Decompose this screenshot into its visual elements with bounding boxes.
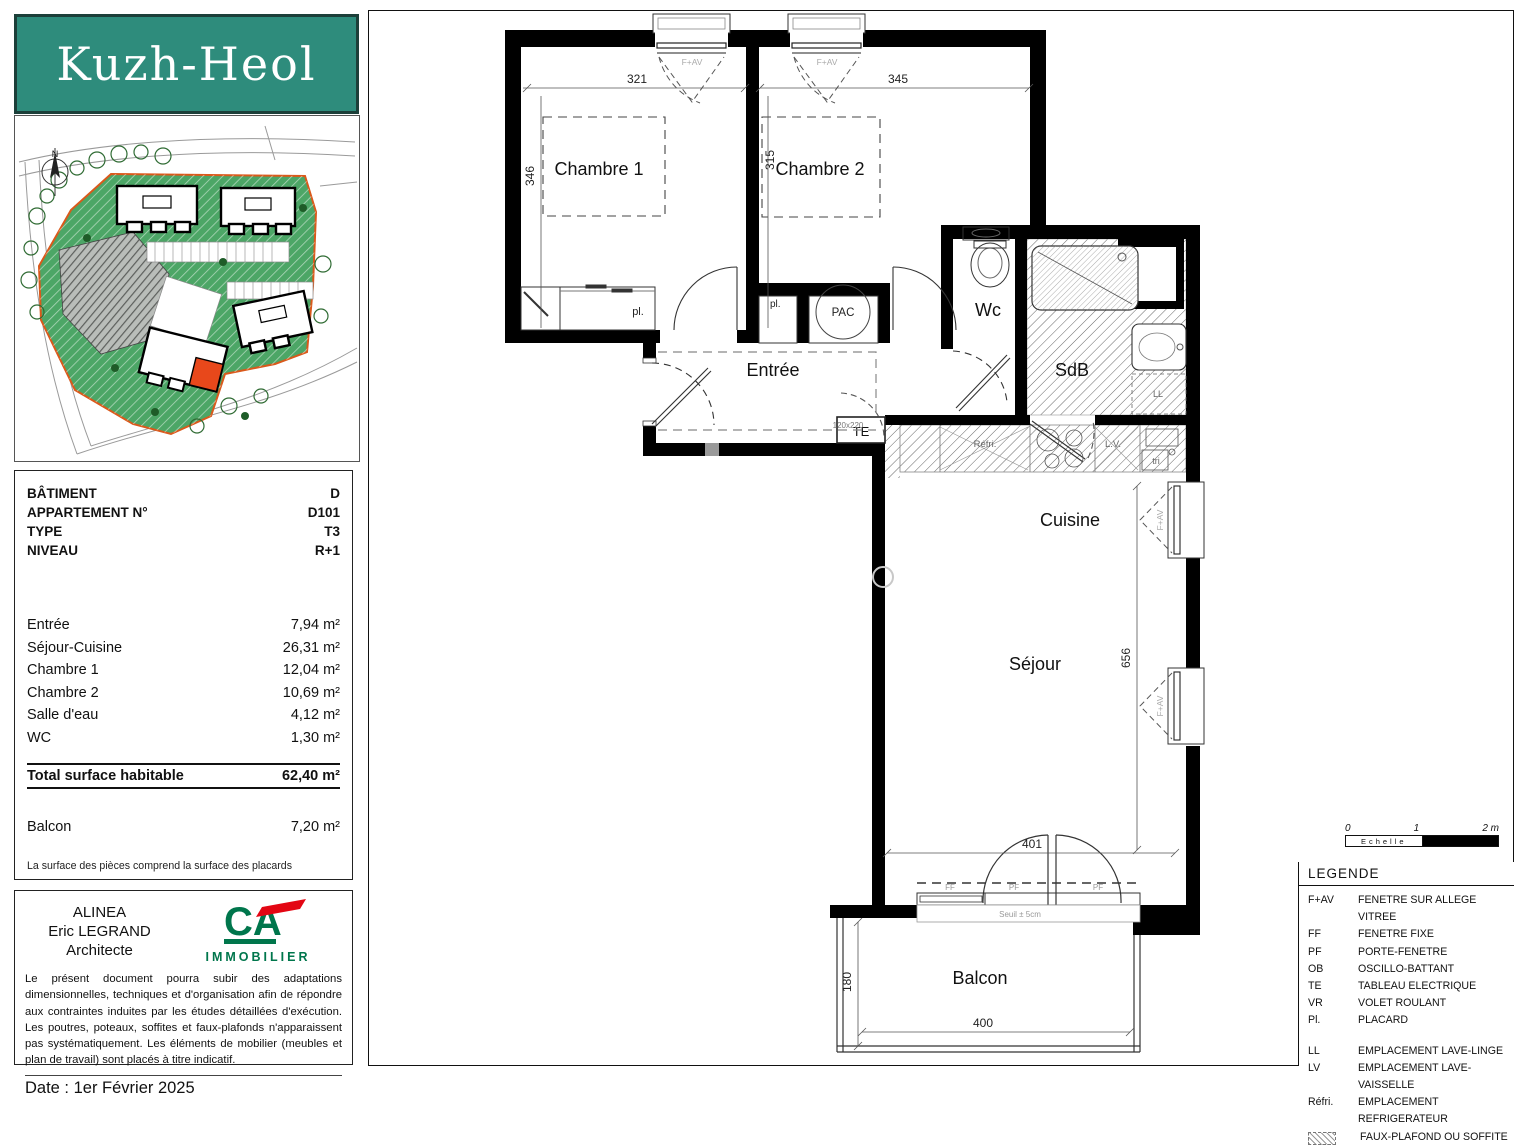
room-areas: Entrée7,94 m² Séjour-Cuisine26,31 m² Cha… bbox=[27, 614, 340, 749]
svg-text:F+AV: F+AV bbox=[1155, 509, 1165, 530]
room-entree: Entrée bbox=[746, 360, 799, 380]
brand-logo: Kuzh-Heol bbox=[14, 14, 359, 114]
info-label: BÂTIMENT bbox=[27, 484, 97, 503]
legend-panel: LEGENDE F+AVFENETRE SUR ALLEGE VITREE FF… bbox=[1298, 862, 1514, 1066]
dim-balcon-height: 180 bbox=[840, 972, 854, 992]
total-surface-row: Total surface habitable 62,40 m² bbox=[27, 763, 340, 789]
legal-disclaimer: Le présent document pourra subir des ada… bbox=[25, 971, 342, 1069]
area-row: Salle d'eau4,12 m² bbox=[27, 704, 340, 727]
dim-balcon-width: 400 bbox=[973, 1016, 993, 1030]
area-row: Séjour-Cuisine26,31 m² bbox=[27, 637, 340, 660]
hatch-swatch-icon bbox=[1308, 1132, 1336, 1145]
ca-logo-icon: CA bbox=[206, 899, 310, 945]
info-value: R+1 bbox=[315, 541, 340, 560]
dim-ch1-width: 321 bbox=[627, 72, 647, 86]
svg-text:PAC: PAC bbox=[832, 307, 855, 319]
svg-text:F+AV: F+AV bbox=[1155, 695, 1165, 716]
svg-text:F+AV: F+AV bbox=[817, 57, 838, 67]
svg-text:LL: LL bbox=[1153, 389, 1163, 399]
area-row: Entrée7,94 m² bbox=[27, 614, 340, 637]
site-plan: N bbox=[14, 115, 360, 462]
architect-identity: ALINEA Eric LEGRAND Architecte bbox=[25, 903, 174, 960]
dim-sejour-height: 656 bbox=[1119, 648, 1133, 668]
brand-name: Kuzh-Heol bbox=[56, 37, 316, 91]
site-plan-drawing: N bbox=[15, 116, 359, 461]
ca-immobilier-logo: CA IMMOBILIER bbox=[174, 899, 342, 964]
room-wc: Wc bbox=[975, 300, 1001, 320]
architect-panel: ALINEA Eric LEGRAND Architecte CA IMMOBI… bbox=[14, 890, 353, 1065]
seuil-label: Seuil ± 5cm bbox=[999, 910, 1041, 919]
architect-role: Architecte bbox=[25, 941, 174, 960]
apartment-location bbox=[189, 358, 223, 392]
room-chambre1: Chambre 1 bbox=[554, 159, 643, 179]
building-1 bbox=[117, 186, 197, 232]
tri-label: tri bbox=[1152, 456, 1160, 466]
legend-item: TETABLEAU ELECTRIQUE bbox=[1308, 978, 1514, 995]
svg-text:F+AV: F+AV bbox=[682, 57, 703, 67]
pf-label-2: PF bbox=[1093, 883, 1103, 892]
window-sejour-1: F+AV bbox=[1140, 482, 1204, 558]
closet-label: pl. bbox=[632, 306, 644, 318]
door-size-label: 120x220 bbox=[833, 421, 864, 430]
ca-logo-subtitle: IMMOBILIER bbox=[174, 950, 342, 964]
legend-item: PFPORTE-FENETRE bbox=[1308, 944, 1514, 961]
scale-bar: 0 1 2 m Echelle bbox=[1345, 823, 1499, 847]
legend-title: LEGENDE bbox=[1308, 866, 1514, 885]
legend-item: FFFENETRE FIXE bbox=[1308, 926, 1514, 943]
dim-ch2-width: 345 bbox=[888, 72, 908, 86]
scale-black-segment bbox=[1423, 836, 1499, 846]
info-value: T3 bbox=[324, 522, 340, 541]
window-chambre2: F+AV bbox=[788, 14, 865, 103]
architect-name: Eric LEGRAND bbox=[25, 922, 174, 941]
window-sejour-2: F+AV bbox=[1140, 668, 1204, 744]
apartment-info-panel: BÂTIMENTD APPARTEMENT N°D101 TYPET3 NIVE… bbox=[14, 470, 353, 880]
closet2-label: pl. bbox=[770, 299, 781, 310]
document-date: Date : 1er Février 2025 bbox=[25, 1075, 342, 1098]
scale-0: 0 bbox=[1345, 823, 1351, 834]
surface-footnote: La surface des pièces comprend la surfac… bbox=[27, 860, 292, 872]
window-chambre1: F+AV bbox=[653, 14, 730, 103]
legend-item: LLEMPLACEMENT LAVE-LINGE bbox=[1308, 1043, 1514, 1060]
pillar bbox=[705, 443, 719, 456]
area-row: Chambre 210,69 m² bbox=[27, 682, 340, 705]
dim-sejour-width: 401 bbox=[1022, 837, 1042, 851]
svg-text:N: N bbox=[52, 149, 59, 159]
legend-item: Pl.PLACARD bbox=[1308, 1012, 1514, 1029]
architect-firm: ALINEA bbox=[25, 903, 174, 922]
area-row: Chambre 112,04 m² bbox=[27, 659, 340, 682]
pf-label-1: PF bbox=[1009, 883, 1019, 892]
info-value: D bbox=[330, 484, 340, 503]
scale-label: Echelle bbox=[1346, 836, 1423, 846]
legend-item: Réfri.EMPLACEMENT REFRIGERATEUR bbox=[1308, 1094, 1514, 1128]
dim-ch1-height: 346 bbox=[523, 166, 537, 186]
room-sejour: Séjour bbox=[1009, 654, 1061, 674]
info-label: NIVEAU bbox=[27, 541, 78, 560]
legend-item: F+AVFENETRE SUR ALLEGE VITREE bbox=[1308, 892, 1514, 926]
info-value: D101 bbox=[308, 503, 340, 522]
dishwasher-label: L.V. bbox=[1105, 439, 1121, 450]
legend-item-hatch: FAUX-PLAFOND OU SOFFITE bbox=[1308, 1129, 1514, 1146]
legend-item: VRVOLET ROULANT bbox=[1308, 995, 1514, 1012]
ff-label: FF bbox=[945, 883, 955, 892]
scale-2: 2 m bbox=[1482, 823, 1499, 834]
legend-item: LVEMPLACEMENT LAVE-VAISSELLE bbox=[1308, 1060, 1514, 1094]
room-sdb: SdB bbox=[1055, 360, 1089, 380]
room-cuisine: Cuisine bbox=[1040, 510, 1100, 530]
building-2 bbox=[221, 188, 295, 234]
balcony-row: Balcon 7,20 m² bbox=[27, 819, 340, 835]
fridge-label: Réfri. bbox=[974, 439, 997, 450]
room-chambre2: Chambre 2 bbox=[775, 159, 864, 179]
area-row: WC1,30 m² bbox=[27, 727, 340, 750]
room-balcon: Balcon bbox=[952, 968, 1007, 988]
info-label: TYPE bbox=[27, 522, 62, 541]
info-label: APPARTEMENT N° bbox=[27, 503, 148, 522]
legend-item: OBOSCILLO-BATTANT bbox=[1308, 961, 1514, 978]
scale-1: 1 bbox=[1414, 823, 1420, 834]
